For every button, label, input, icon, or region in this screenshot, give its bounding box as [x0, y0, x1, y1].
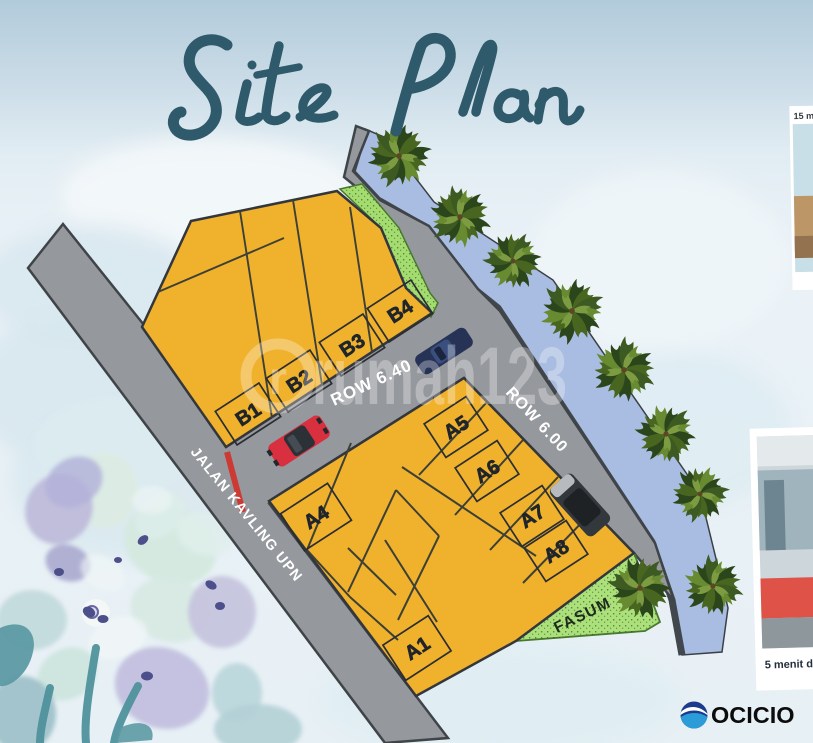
svg-text:5 menit d: 5 menit d — [765, 658, 813, 671]
svg-text:OCICIO: OCICIO — [711, 702, 795, 728]
svg-text:rumah123: rumah123 — [312, 331, 567, 422]
svg-text:r: r — [269, 352, 287, 404]
svg-text:15 m: 15 m — [793, 111, 813, 121]
